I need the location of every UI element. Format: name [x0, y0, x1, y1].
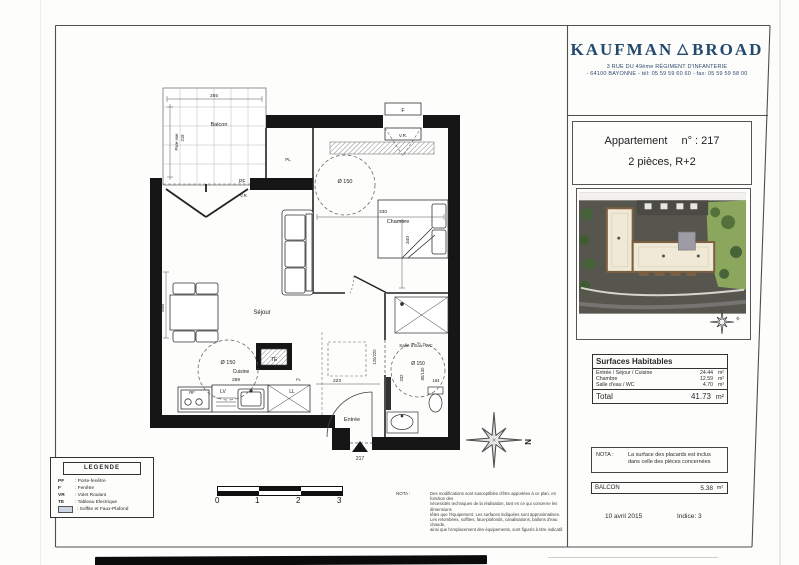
electrical-panel: TE [256, 343, 292, 370]
window-vr-label: V.R. [399, 133, 407, 138]
legend-item: : Soffite et Faux-Plafond [58, 506, 153, 513]
nota-placards-box: NOTA : La surface des placards est inclu… [591, 447, 728, 473]
toilet [428, 387, 443, 412]
surfaces-table: Surfaces Habitables Entrée / Séjour / Cu… [592, 354, 728, 404]
total-unit: m² [711, 394, 724, 401]
balcon-unit: m² [713, 485, 727, 491]
entry-door-number: 217 [356, 456, 365, 462]
room-label-entree: Entrée [344, 417, 360, 423]
table-row: Salle d'eau / WC 4.70 m² [596, 382, 724, 388]
site-plan-box: N [576, 188, 751, 340]
nota-disclaimer: NOTA : Des modifications sont susceptibl… [396, 491, 568, 533]
door-dim: 120/220 [372, 349, 377, 365]
disclaimer-line: ainsi que l'emplacement des équipements,… [430, 527, 568, 532]
disclaimer-line: Les retombées, soffites, faux-plafonds, … [430, 517, 568, 527]
balcon-label: BALCON [592, 485, 700, 491]
brand-logo: KAUFMAN △ BROAD [568, 40, 766, 60]
appliance-rf: RF [189, 390, 195, 395]
brand-name-right: BROAD [692, 40, 763, 60]
closet-label-top: PL [285, 157, 291, 162]
scale-tick: 3 [337, 496, 341, 505]
plan-indice: Indice: 3 [677, 513, 702, 520]
north-letter: N [523, 439, 532, 445]
chambre-door [350, 276, 387, 293]
room-label-chambre: Chambre [387, 219, 410, 225]
legend-item: VR : Volet Roulant [58, 492, 153, 499]
pare-vue-dim: 219 [180, 134, 185, 142]
pare-vue-label: Pare-vue [174, 133, 179, 151]
legend-title: LEGENDE [63, 462, 141, 475]
nota-disclaimer-label: NOTA : [396, 491, 430, 533]
surface-unit: m² [713, 382, 724, 388]
scale-tick: 2 [296, 496, 300, 505]
balcon-value: 5.38 [700, 485, 713, 492]
legend-box: LEGENDE PF : Porte-fenêtre F : Fenêtre V… [50, 457, 154, 518]
bed [378, 200, 448, 258]
floor-plan-drawing: 255 Pare-vue 219 Balcon F V.R. [140, 80, 480, 480]
sejour-dim: 546 [160, 304, 166, 312]
scan-artifact-bar [95, 555, 487, 565]
legend-abbr: PF [58, 478, 75, 485]
site-aerial-image [579, 192, 746, 314]
bath-door: 120/220 [372, 340, 391, 410]
total-value: 41.73 [681, 392, 711, 401]
total-label: Total [596, 392, 681, 401]
apartment-label: Appartement [604, 135, 667, 147]
brand-name-left: KAUFMAN [571, 40, 674, 60]
legend-label: : Fenêtre [75, 485, 94, 492]
chambre-dim-w: 330 [379, 209, 387, 215]
apartment-number: n° : 217 [681, 135, 719, 147]
legend-label: : Tableau Electrique [75, 499, 117, 506]
bath-dim-1: 332 [399, 374, 404, 382]
pf-label: PF [239, 179, 245, 185]
legend-label: : Volet Roulant [75, 492, 106, 499]
surface-value: 4.70 [687, 382, 713, 388]
shower [395, 297, 448, 333]
nota-label: NOTA : [592, 448, 628, 472]
soffite-swatch [58, 506, 73, 513]
window-f: F V.R. [330, 103, 434, 156]
plan-date: 10 avril 2015 [605, 513, 642, 520]
room-label-cuisine: Cuisine [233, 369, 250, 375]
legend-abbr: F [58, 485, 75, 492]
scale-tick: 1 [255, 496, 259, 505]
dining-table [170, 283, 218, 342]
appliance-ll: LL [289, 389, 295, 395]
room-label-sejour: Séjour [253, 310, 270, 316]
brand-block: KAUFMAN △ BROAD 3 RUE DU 49ème RÉGIMENT … [568, 40, 766, 78]
closet-label-kitchen: PL [296, 377, 302, 382]
soffite-strip [330, 142, 434, 154]
scanned-floor-plan-page: KAUFMAN △ BROAD 3 RUE DU 49ème RÉGIMENT … [0, 0, 799, 565]
balcon-surface-box: BALCON 5.38 m² [591, 482, 728, 494]
pf-vr-label: V.R. [240, 193, 248, 198]
brand-address-line2: - 64100 BAYONNE - tél: 05 59 59 60 60 - … [568, 71, 766, 78]
legend-item: TE : Tableau Electrique [58, 499, 153, 506]
legend-label: : Soffite et Faux-Plafond [77, 506, 128, 513]
surfaces-title: Surfaces Habitables [593, 355, 727, 369]
hall-closet-dashed [328, 342, 366, 376]
legend-item: PF : Porte-fenêtre [58, 478, 153, 485]
scale-bar: 0 1 2 3 [217, 486, 347, 508]
te-label: TE [271, 357, 278, 363]
sofa [282, 210, 313, 295]
legend-item: F : Fenêtre [58, 485, 153, 492]
legend-abbr: TE [58, 499, 75, 506]
hall-dim: 223 [333, 378, 341, 384]
appliance-four: (four) [187, 415, 197, 419]
balcony-dim: 255 [210, 93, 218, 99]
brand-triangle-icon: △ [677, 41, 688, 58]
nota-text: La surface des placards est inclus dans … [628, 448, 727, 472]
room-label-bath: Salle d'Eau+WC [399, 343, 433, 348]
legend-abbr: VR [58, 492, 75, 499]
highlighted-roof [678, 232, 695, 250]
surfaces-total-row: Total 41.73 m² [593, 389, 727, 403]
bath-dim-2: 80/130 [420, 367, 425, 380]
site-compass: N [707, 309, 747, 337]
disclaimer-line: Des modifications sont susceptibles d'êt… [430, 491, 568, 501]
cuisine-dim: 289 [232, 377, 240, 383]
scale-tick: 0 [215, 496, 219, 505]
bath-dim-3: 164 [433, 378, 441, 383]
chambre-dim-h: 340 [405, 236, 411, 244]
brand-address-line1: 3 RUE DU 49ème RÉGIMENT D'INFANTERIE [568, 64, 766, 71]
surface-label: Salle d'eau / WC [596, 382, 687, 388]
appliance-lv: LV [220, 389, 226, 395]
site-compass-letter: N [735, 316, 741, 322]
circle-label-bath: Ø 150 [411, 361, 425, 367]
washbasin [387, 412, 418, 433]
disclaimer-line: nécessités techniques de la réalisation,… [430, 501, 568, 511]
circle-label-cuisine: Ø 150 [221, 360, 236, 366]
scan-artifact-line [548, 557, 718, 558]
room-label-balcon: Balcon [211, 122, 228, 128]
legend-label: : Porte-fenêtre [75, 478, 106, 485]
balcony: 255 Pare-vue 219 Balcon [163, 88, 266, 185]
circle-label-chambre: Ø 150 [338, 179, 353, 185]
apartment-info-box: Appartementn° : 217 2 pièces, R+2 [572, 121, 752, 185]
apartment-type: 2 pièces, R+2 [573, 156, 751, 168]
